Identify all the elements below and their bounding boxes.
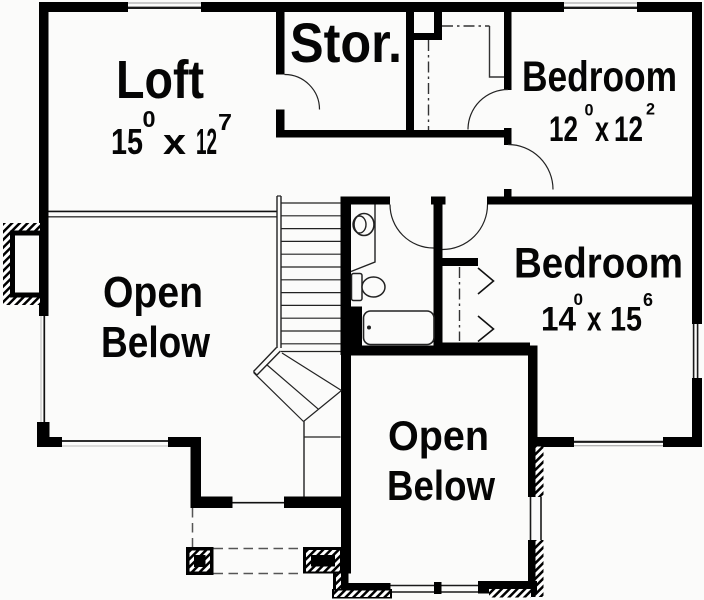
svg-text:Open: Open — [388, 412, 489, 459]
svg-text:12: 12 — [614, 110, 643, 149]
svg-text:15: 15 — [610, 301, 642, 339]
svg-text:Below: Below — [387, 462, 495, 509]
svg-text:x: x — [595, 110, 609, 149]
svg-text:6: 6 — [643, 290, 653, 310]
svg-text:Below: Below — [101, 318, 211, 367]
svg-text:Loft: Loft — [116, 50, 204, 110]
svg-text:Bedroom: Bedroom — [522, 54, 677, 101]
svg-text:15: 15 — [111, 121, 143, 162]
svg-text:14: 14 — [541, 301, 576, 339]
svg-text:0: 0 — [143, 106, 156, 132]
svg-text:x: x — [163, 121, 186, 162]
svg-text:2: 2 — [646, 100, 655, 119]
svg-text:7: 7 — [218, 109, 232, 135]
svg-text:0: 0 — [585, 101, 594, 120]
svg-text:x: x — [587, 301, 602, 339]
svg-text:12: 12 — [549, 110, 578, 149]
svg-text:12: 12 — [196, 121, 217, 162]
svg-text:Bedroom: Bedroom — [514, 240, 683, 288]
svg-text:Stor.: Stor. — [290, 11, 402, 74]
svg-text:Open: Open — [103, 268, 203, 317]
svg-text:0: 0 — [574, 290, 584, 309]
